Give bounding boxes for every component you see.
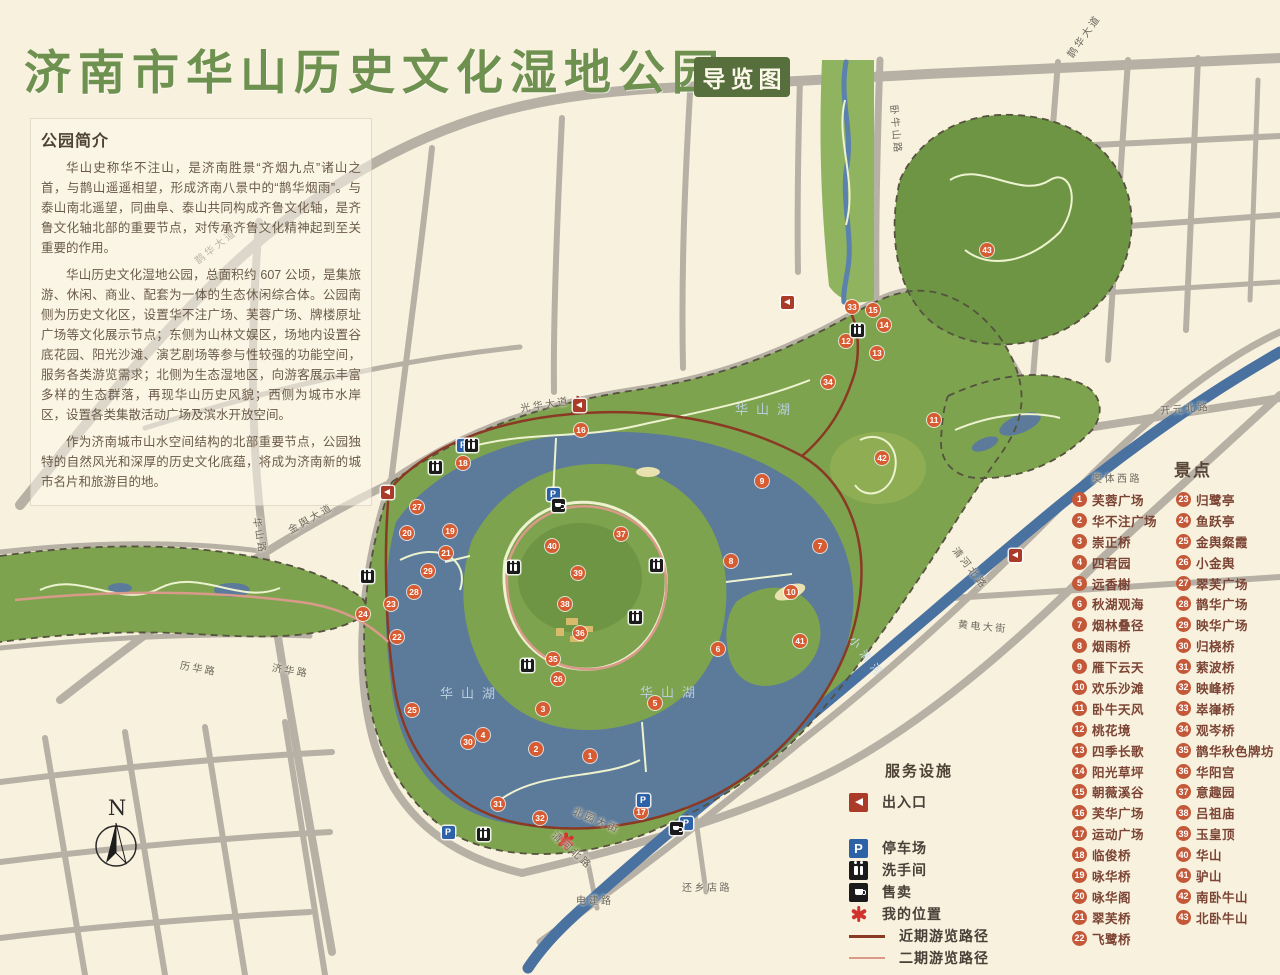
scenic-spot-item: 20咏华阁 xyxy=(1072,886,1174,907)
spot-number-badge: 31 xyxy=(1176,659,1191,674)
scenic-spot-marker: 38 xyxy=(558,597,572,611)
facility-legend-item: 洗手间 xyxy=(849,859,1035,881)
facility-legend-item: P停车场 xyxy=(849,837,1035,859)
road-name-label: 历华路 xyxy=(179,657,219,678)
intro-paragraph-1: 华山史称华不注山，是济南胜景“齐烟九点”诸山之首，与鹊山遥遥相望，形成济南八景中… xyxy=(41,158,361,258)
scenic-spot-item: 3崇正桥 xyxy=(1072,531,1174,552)
scenic-spot-item: 38吕祖庙 xyxy=(1176,802,1278,823)
spot-name: 萦波桥 xyxy=(1196,657,1235,676)
scenic-spot-marker: 6 xyxy=(711,642,725,656)
scenic-spot-item: 25金舆粲霞 xyxy=(1176,531,1278,552)
scenic-spot-marker: 30 xyxy=(461,735,475,749)
spot-number-badge: 40 xyxy=(1176,847,1191,862)
scenic-spot-item: 6秋湖观海 xyxy=(1072,593,1174,614)
spot-number-badge: 15 xyxy=(1072,784,1087,799)
spot-name: 烟林叠径 xyxy=(1092,615,1144,634)
spot-name: 秋湖观海 xyxy=(1092,594,1144,613)
spot-number-badge: 29 xyxy=(1176,617,1191,632)
spot-number-badge: 4 xyxy=(1072,555,1087,570)
scenic-spots-legend: 景点 1芙蓉广场2华不注广场3崇正桥4四君园5远香榭6秋湖观海7烟林叠径8烟雨桥… xyxy=(1072,456,1278,489)
restroom-icon xyxy=(851,324,864,337)
restroom-icon xyxy=(477,828,490,841)
spot-number-badge: 39 xyxy=(1176,826,1191,841)
scenic-spot-item: 21翠芙桥 xyxy=(1072,907,1174,928)
parking-icon: P xyxy=(637,794,650,807)
facility-legend-item: 我的位置 xyxy=(849,903,1035,925)
parking-icon: P xyxy=(849,839,868,858)
spot-name: 雁下云天 xyxy=(1092,657,1144,676)
scenic-spot-marker: 39 xyxy=(571,566,585,580)
restroom-icon xyxy=(650,559,663,572)
facility-legend-item: 二期游览路径 xyxy=(849,947,1035,969)
scenic-spot-item: 13四季长歌 xyxy=(1072,740,1174,761)
restroom-icon xyxy=(465,439,478,452)
road-name-label: 清河北路 xyxy=(950,543,993,592)
scenic-spot-item: 29映华广场 xyxy=(1176,614,1278,635)
scenic-spot-item: 22飞鹭桥 xyxy=(1072,928,1174,949)
scenic-spot-marker: 8 xyxy=(724,554,738,568)
spot-number-badge: 36 xyxy=(1176,764,1191,779)
service-facilities-legend: 服务设施 出入口P停车场洗手间售卖我的位置近期游览路径二期游览路径 xyxy=(845,760,1035,969)
spot-number-badge: 22 xyxy=(1072,931,1087,946)
intro-paragraph-3: 作为济南城市山水空间结构的北部重要节点，公园独特的自然风光和深厚的历史文化底蕴，… xyxy=(41,432,361,492)
facility-label: 二期游览路径 xyxy=(899,948,989,968)
scenic-spot-marker: 2 xyxy=(529,742,543,756)
lake-name-label: 华山湖 xyxy=(735,399,798,418)
lake-name-label: 华山湖 xyxy=(640,682,703,701)
spot-number-badge: 13 xyxy=(1072,743,1087,758)
scenic-spot-marker: 13 xyxy=(870,346,884,360)
facility-label: 售卖 xyxy=(882,882,912,902)
scenic-spot-item: 4四君园 xyxy=(1072,552,1174,573)
scenic-column-1: 1芙蓉广场2华不注广场3崇正桥4四君园5远香榭6秋湖观海7烟林叠径8烟雨桥9雁下… xyxy=(1072,489,1174,949)
spot-name: 南卧牛山 xyxy=(1196,887,1248,906)
spot-name: 欢乐沙滩 xyxy=(1092,678,1144,697)
lake-name-label: 华山湖 xyxy=(440,683,503,702)
scenic-spot-marker: 32 xyxy=(533,811,547,825)
spot-number-badge: 25 xyxy=(1176,534,1191,549)
spot-name: 远香榭 xyxy=(1092,574,1131,593)
spot-name: 鹊华秋色牌坊 xyxy=(1196,741,1274,760)
scenic-spot-item: 8烟雨桥 xyxy=(1072,635,1174,656)
road-name-label: 电建路 xyxy=(576,892,614,907)
spot-name: 朝薇溪谷 xyxy=(1092,782,1144,801)
spot-number-badge: 5 xyxy=(1072,576,1087,591)
spot-name: 桃花境 xyxy=(1092,720,1131,739)
spot-name: 卧牛天风 xyxy=(1092,699,1144,718)
restroom-icon xyxy=(629,611,642,624)
scenic-spot-marker: 27 xyxy=(410,500,424,514)
spot-number-badge: 10 xyxy=(1072,680,1087,695)
scenic-spot-item: 26小金舆 xyxy=(1176,552,1278,573)
primary-route-swatch xyxy=(849,935,885,938)
facilities-list: 出入口P停车场洗手间售卖我的位置近期游览路径二期游览路径 xyxy=(845,791,1035,969)
spot-name: 映峰桥 xyxy=(1196,678,1235,697)
scenic-spot-marker: 1 xyxy=(583,749,597,763)
scenic-spot-item: 18临俊桥 xyxy=(1072,844,1174,865)
spot-name: 咏华阁 xyxy=(1092,887,1131,906)
scenic-spot-item: 32映峰桥 xyxy=(1176,677,1278,698)
spot-number-badge: 7 xyxy=(1072,617,1087,632)
spot-number-badge: 12 xyxy=(1072,722,1087,737)
scenic-spot-item: 28鹊华广场 xyxy=(1176,593,1278,614)
spot-name: 阳光草坪 xyxy=(1092,762,1144,781)
scenic-spot-marker: 3 xyxy=(536,702,550,716)
entrance-exit-icon xyxy=(1009,549,1022,562)
road-name-label: 还乡店路 xyxy=(682,879,732,894)
scenic-spot-marker: 23 xyxy=(384,597,398,611)
scenic-spot-item: 40华山 xyxy=(1176,844,1278,865)
secondary-route-swatch xyxy=(849,957,885,959)
road-name-label: 北园大街 xyxy=(571,803,623,836)
vending-icon xyxy=(849,883,868,902)
spot-number-badge: 24 xyxy=(1176,513,1191,528)
compass-north-label: N xyxy=(88,798,146,819)
spot-name: 金舆粲霞 xyxy=(1196,532,1248,551)
scenic-spot-marker: 16 xyxy=(574,423,588,437)
scenic-spot-item: 15朝薇溪谷 xyxy=(1072,781,1174,802)
scenic-spot-marker: 9 xyxy=(755,474,769,488)
spot-number-badge: 14 xyxy=(1072,764,1087,779)
facility-label: 停车场 xyxy=(882,838,927,858)
spot-number-badge: 42 xyxy=(1176,889,1191,904)
scenic-spot-item: 9雁下云天 xyxy=(1072,656,1174,677)
spot-number-badge: 17 xyxy=(1072,826,1087,841)
poster-title: 济南市华山历史文化湿地公园 xyxy=(24,34,726,103)
facility-legend-item: 售卖 xyxy=(849,881,1035,903)
spot-number-badge: 20 xyxy=(1072,889,1087,904)
scenic-spot-item: 19咏华桥 xyxy=(1072,865,1174,886)
spot-name: 驴山 xyxy=(1196,866,1222,885)
entrance-exit-icon xyxy=(381,486,394,499)
scenic-spot-item: 41驴山 xyxy=(1176,865,1278,886)
spot-name: 崒嵂桥 xyxy=(1196,699,1235,718)
spot-name: 咏华桥 xyxy=(1092,866,1131,885)
road-name-label: 黄电大街 xyxy=(957,616,1008,635)
scenic-spot-item: 7烟林叠径 xyxy=(1072,614,1174,635)
spot-number-badge: 26 xyxy=(1176,555,1191,570)
parking-icon: P xyxy=(442,826,455,839)
facilities-legend-heading: 服务设施 xyxy=(885,760,1035,781)
spot-name: 观岑桥 xyxy=(1196,720,1235,739)
restroom-icon xyxy=(521,659,534,672)
spot-name: 吕祖庙 xyxy=(1196,803,1235,822)
restroom-icon xyxy=(361,570,374,583)
scenic-spot-item: 27翠芙广场 xyxy=(1176,573,1278,594)
road-name-label: 济华路 xyxy=(271,659,310,680)
scenic-spot-marker: 14 xyxy=(877,318,891,332)
spot-number-badge: 27 xyxy=(1176,576,1191,591)
spot-number-badge: 34 xyxy=(1176,722,1191,737)
scenic-spot-marker: 25 xyxy=(405,703,419,717)
spot-name: 归桡桥 xyxy=(1196,636,1235,655)
scenic-spot-item: 10欢乐沙滩 xyxy=(1072,677,1174,698)
spot-number-badge: 30 xyxy=(1176,638,1191,653)
facility-legend-item: 近期游览路径 xyxy=(849,925,1035,947)
scenic-spot-item: 31萦波桥 xyxy=(1176,656,1278,677)
entrance-exit-icon xyxy=(849,793,868,812)
scenic-spot-item: 30归桡桥 xyxy=(1176,635,1278,656)
spot-name: 芙华广场 xyxy=(1092,803,1144,822)
restroom-icon xyxy=(429,461,442,474)
spot-number-badge: 6 xyxy=(1072,596,1087,611)
spot-name: 鹊华广场 xyxy=(1196,594,1248,613)
scenic-spot-item: 39玉皇顶 xyxy=(1176,823,1278,844)
spot-name: 华山 xyxy=(1196,845,1222,864)
facility-label: 近期游览路径 xyxy=(899,926,989,946)
spot-number-badge: 2 xyxy=(1072,513,1087,528)
spot-number-badge: 16 xyxy=(1072,805,1087,820)
scenic-column-2: 23归鹭亭24鱼跃亭25金舆粲霞26小金舆27翠芙广场28鹊华广场29映华广场3… xyxy=(1176,489,1278,928)
spot-name: 飞鹭桥 xyxy=(1092,929,1131,948)
scenic-spot-item: 14阳光草坪 xyxy=(1072,761,1174,782)
compass-rose-icon xyxy=(89,819,143,873)
scenic-spot-marker: 19 xyxy=(443,524,457,538)
guide-map-badge: 导览图 xyxy=(694,57,790,97)
scenic-spot-item: 37意趣园 xyxy=(1176,781,1278,802)
spot-number-badge: 43 xyxy=(1176,910,1191,925)
scenic-spot-marker: 29 xyxy=(421,564,435,578)
scenic-spot-marker: 43 xyxy=(980,243,994,257)
road-name-label: 光华大道 xyxy=(519,392,571,415)
scenic-spot-marker: 34 xyxy=(821,375,835,389)
spot-number-badge: 33 xyxy=(1176,701,1191,716)
spot-name: 翠芙桥 xyxy=(1092,908,1131,927)
facility-label: 我的位置 xyxy=(882,904,942,924)
scenic-spot-marker: 35 xyxy=(546,652,560,666)
spot-name: 崇正桥 xyxy=(1092,532,1131,551)
spot-number-badge: 9 xyxy=(1072,659,1087,674)
spot-name: 玉皇顶 xyxy=(1196,824,1235,843)
scenic-spot-marker: 28 xyxy=(407,585,421,599)
facility-label: 洗手间 xyxy=(882,860,927,880)
spot-number-badge: 41 xyxy=(1176,868,1191,883)
scenic-spot-marker: 11 xyxy=(927,413,941,427)
restroom-icon xyxy=(507,561,520,574)
spot-number-badge: 1 xyxy=(1072,492,1087,507)
scenic-spot-item: 36华阳宫 xyxy=(1176,761,1278,782)
scenic-spot-item: 24鱼跃亭 xyxy=(1176,510,1278,531)
scenic-spot-item: 35鹊华秋色牌坊 xyxy=(1176,740,1278,761)
scenic-spot-marker: 31 xyxy=(491,797,505,811)
scenic-spot-item: 43北卧牛山 xyxy=(1176,907,1278,928)
scenic-spot-item: 34观岑桥 xyxy=(1176,719,1278,740)
spot-number-badge: 32 xyxy=(1176,680,1191,695)
north-compass: N xyxy=(86,798,146,878)
scenic-spot-item: 5远香榭 xyxy=(1072,573,1174,594)
spot-number-badge: 3 xyxy=(1072,534,1087,549)
spot-number-badge: 21 xyxy=(1072,910,1087,925)
spot-name: 意趣园 xyxy=(1196,782,1235,801)
scenic-spot-marker: 18 xyxy=(456,456,470,470)
road-name-label: 鹊华大道 xyxy=(1063,11,1104,61)
spot-number-badge: 11 xyxy=(1072,701,1087,716)
scenic-spot-marker: 36 xyxy=(573,626,587,640)
my-location-icon xyxy=(849,905,868,924)
spot-number-badge: 19 xyxy=(1072,868,1087,883)
scenic-spot-marker: 37 xyxy=(614,527,628,541)
spot-number-badge: 28 xyxy=(1176,596,1191,611)
spot-name: 四季长歌 xyxy=(1092,741,1144,760)
river-name-label: 小清河 xyxy=(845,633,889,683)
scenic-spot-marker: 17 xyxy=(634,805,648,819)
scenic-spot-item: 2华不注广场 xyxy=(1072,510,1174,531)
scenic-spot-marker: 33 xyxy=(845,300,859,314)
spot-name: 华阳宫 xyxy=(1196,762,1235,781)
scenic-spot-item: 42南卧牛山 xyxy=(1176,886,1278,907)
facility-label: 出入口 xyxy=(882,792,927,812)
vending-icon xyxy=(670,822,683,835)
spot-name: 华不注广场 xyxy=(1092,511,1157,530)
scenic-spot-item: 1芙蓉广场 xyxy=(1072,489,1174,510)
scenic-spot-marker: 22 xyxy=(390,630,404,644)
spot-name: 翠芙广场 xyxy=(1196,574,1248,593)
spot-name: 北卧牛山 xyxy=(1196,908,1248,927)
scenic-spot-marker: 4 xyxy=(476,728,490,742)
park-introduction-panel: 公园简介 华山史称华不注山，是济南胜景“齐烟九点”诸山之首，与鹊山遥遥相望，形成… xyxy=(30,118,372,506)
scenic-spot-marker: 41 xyxy=(793,634,807,648)
scenic-spot-marker: 21 xyxy=(439,546,453,560)
spot-name: 运动广场 xyxy=(1092,824,1144,843)
scenic-spot-item: 16芙华广场 xyxy=(1072,802,1174,823)
facility-legend-item: 出入口 xyxy=(849,791,1035,813)
scenic-spot-marker: 40 xyxy=(545,539,559,553)
spot-number-badge: 18 xyxy=(1072,847,1087,862)
scenic-spot-marker: 20 xyxy=(400,526,414,540)
road-name-label: 开元北路 xyxy=(1159,398,1210,417)
scenic-legend-heading: 景点 xyxy=(1174,456,1278,481)
scenic-spot-marker: 24 xyxy=(356,607,370,621)
spot-name: 临俊桥 xyxy=(1092,845,1131,864)
scenic-spot-item: 12桃花境 xyxy=(1072,719,1174,740)
scenic-spot-marker: 26 xyxy=(551,672,565,686)
spot-name: 鱼跃亭 xyxy=(1196,511,1235,530)
park-guide-map-poster: 1234567891011121314151617181920212223242… xyxy=(0,0,1280,975)
scenic-spot-marker: 10 xyxy=(784,585,798,599)
spot-number-badge: 37 xyxy=(1176,784,1191,799)
restroom-icon xyxy=(849,861,868,880)
road-name-label: 华山路 xyxy=(250,516,271,556)
spot-name: 小金舆 xyxy=(1196,553,1235,572)
spot-number-badge: 23 xyxy=(1176,492,1191,507)
scenic-spot-item: 33崒嵂桥 xyxy=(1176,698,1278,719)
spot-name: 烟雨桥 xyxy=(1092,636,1131,655)
intro-paragraph-2: 华山历史文化湿地公园，总面积约 607 公顷，是集旅游、休闲、商业、配套为一体的… xyxy=(41,265,361,425)
spot-name: 四君园 xyxy=(1092,553,1131,572)
spot-name: 芙蓉广场 xyxy=(1092,490,1144,509)
intro-heading: 公园简介 xyxy=(41,127,361,151)
road-name-label: 卧牛山路 xyxy=(887,104,906,155)
spot-number-badge: 38 xyxy=(1176,805,1191,820)
scenic-spot-item: 23归鹭亭 xyxy=(1176,489,1278,510)
scenic-spot-marker: 7 xyxy=(813,539,827,553)
scenic-spot-item: 17运动广场 xyxy=(1072,823,1174,844)
spot-number-badge: 35 xyxy=(1176,743,1191,758)
scenic-spot-marker: 42 xyxy=(875,451,889,465)
spot-name: 映华广场 xyxy=(1196,615,1248,634)
entrance-exit-icon xyxy=(573,399,586,412)
scenic-spot-item: 11卧牛天风 xyxy=(1072,698,1174,719)
spot-number-badge: 8 xyxy=(1072,638,1087,653)
scenic-spot-marker: 15 xyxy=(866,303,880,317)
spot-name: 归鹭亭 xyxy=(1196,490,1235,509)
entrance-exit-icon xyxy=(781,296,794,309)
vending-icon xyxy=(552,499,565,512)
